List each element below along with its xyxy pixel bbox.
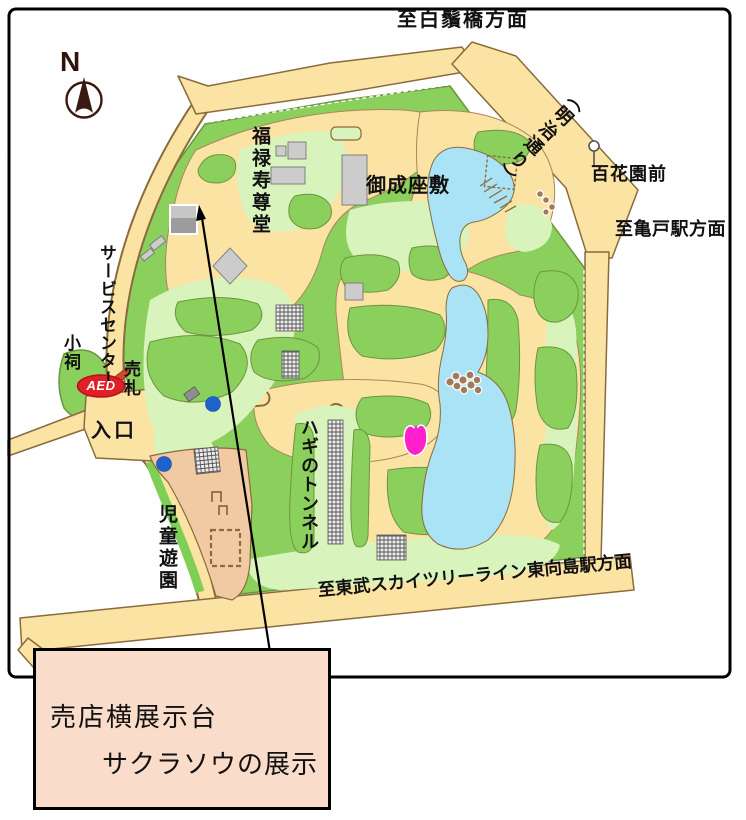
label-small-shrine: 小祠 xyxy=(62,334,79,372)
park-guide-map: 至白鬚橋方面 （明治通り） 百花園前 至亀戸駅方面 御成座敷 福禄寿尊堂 サービ… xyxy=(0,0,746,820)
label-childrens-playground: 児童遊園 xyxy=(157,504,176,592)
label-bus-stop: 百花園前 xyxy=(591,165,667,183)
label-onari-zashiki: 御成座敷 xyxy=(366,176,450,196)
label-service-center: サービスセンター xyxy=(98,244,115,388)
aed-label: AED xyxy=(80,379,122,392)
label-kameido-road: 至亀戸駅方面 xyxy=(615,220,726,238)
trellis xyxy=(377,535,406,560)
label-entrance: 入口 xyxy=(91,421,137,441)
label-ticket-booth: 売札 xyxy=(122,360,139,398)
label-hagi-tunnel: ハギのトンネル xyxy=(300,418,318,551)
annotation-line2: サクラソウの展示 xyxy=(102,744,328,781)
hagi-tunnel-trellis xyxy=(328,420,343,544)
compass-n-label: N xyxy=(60,48,80,76)
flower-tulip-icon xyxy=(405,425,426,455)
annotation-line1: 売店横展示台 xyxy=(50,697,328,734)
onari-zashiki-building xyxy=(342,155,367,205)
fukurokuju-hall-building xyxy=(271,167,305,184)
trellis xyxy=(276,305,303,331)
playground-trellis xyxy=(194,447,220,474)
shop-building xyxy=(170,205,197,234)
blue-marker-dot xyxy=(157,457,172,472)
trellis xyxy=(282,351,299,378)
label-shirahige-road: 至白鬚橋方面 xyxy=(397,10,529,30)
label-fukurokuju-hall: 福禄寿尊堂 xyxy=(250,126,269,236)
blue-marker-dot xyxy=(206,397,221,412)
gate-structure xyxy=(331,127,361,140)
annotation-box: 売店横展示台 サクラソウの展示 xyxy=(33,648,331,810)
